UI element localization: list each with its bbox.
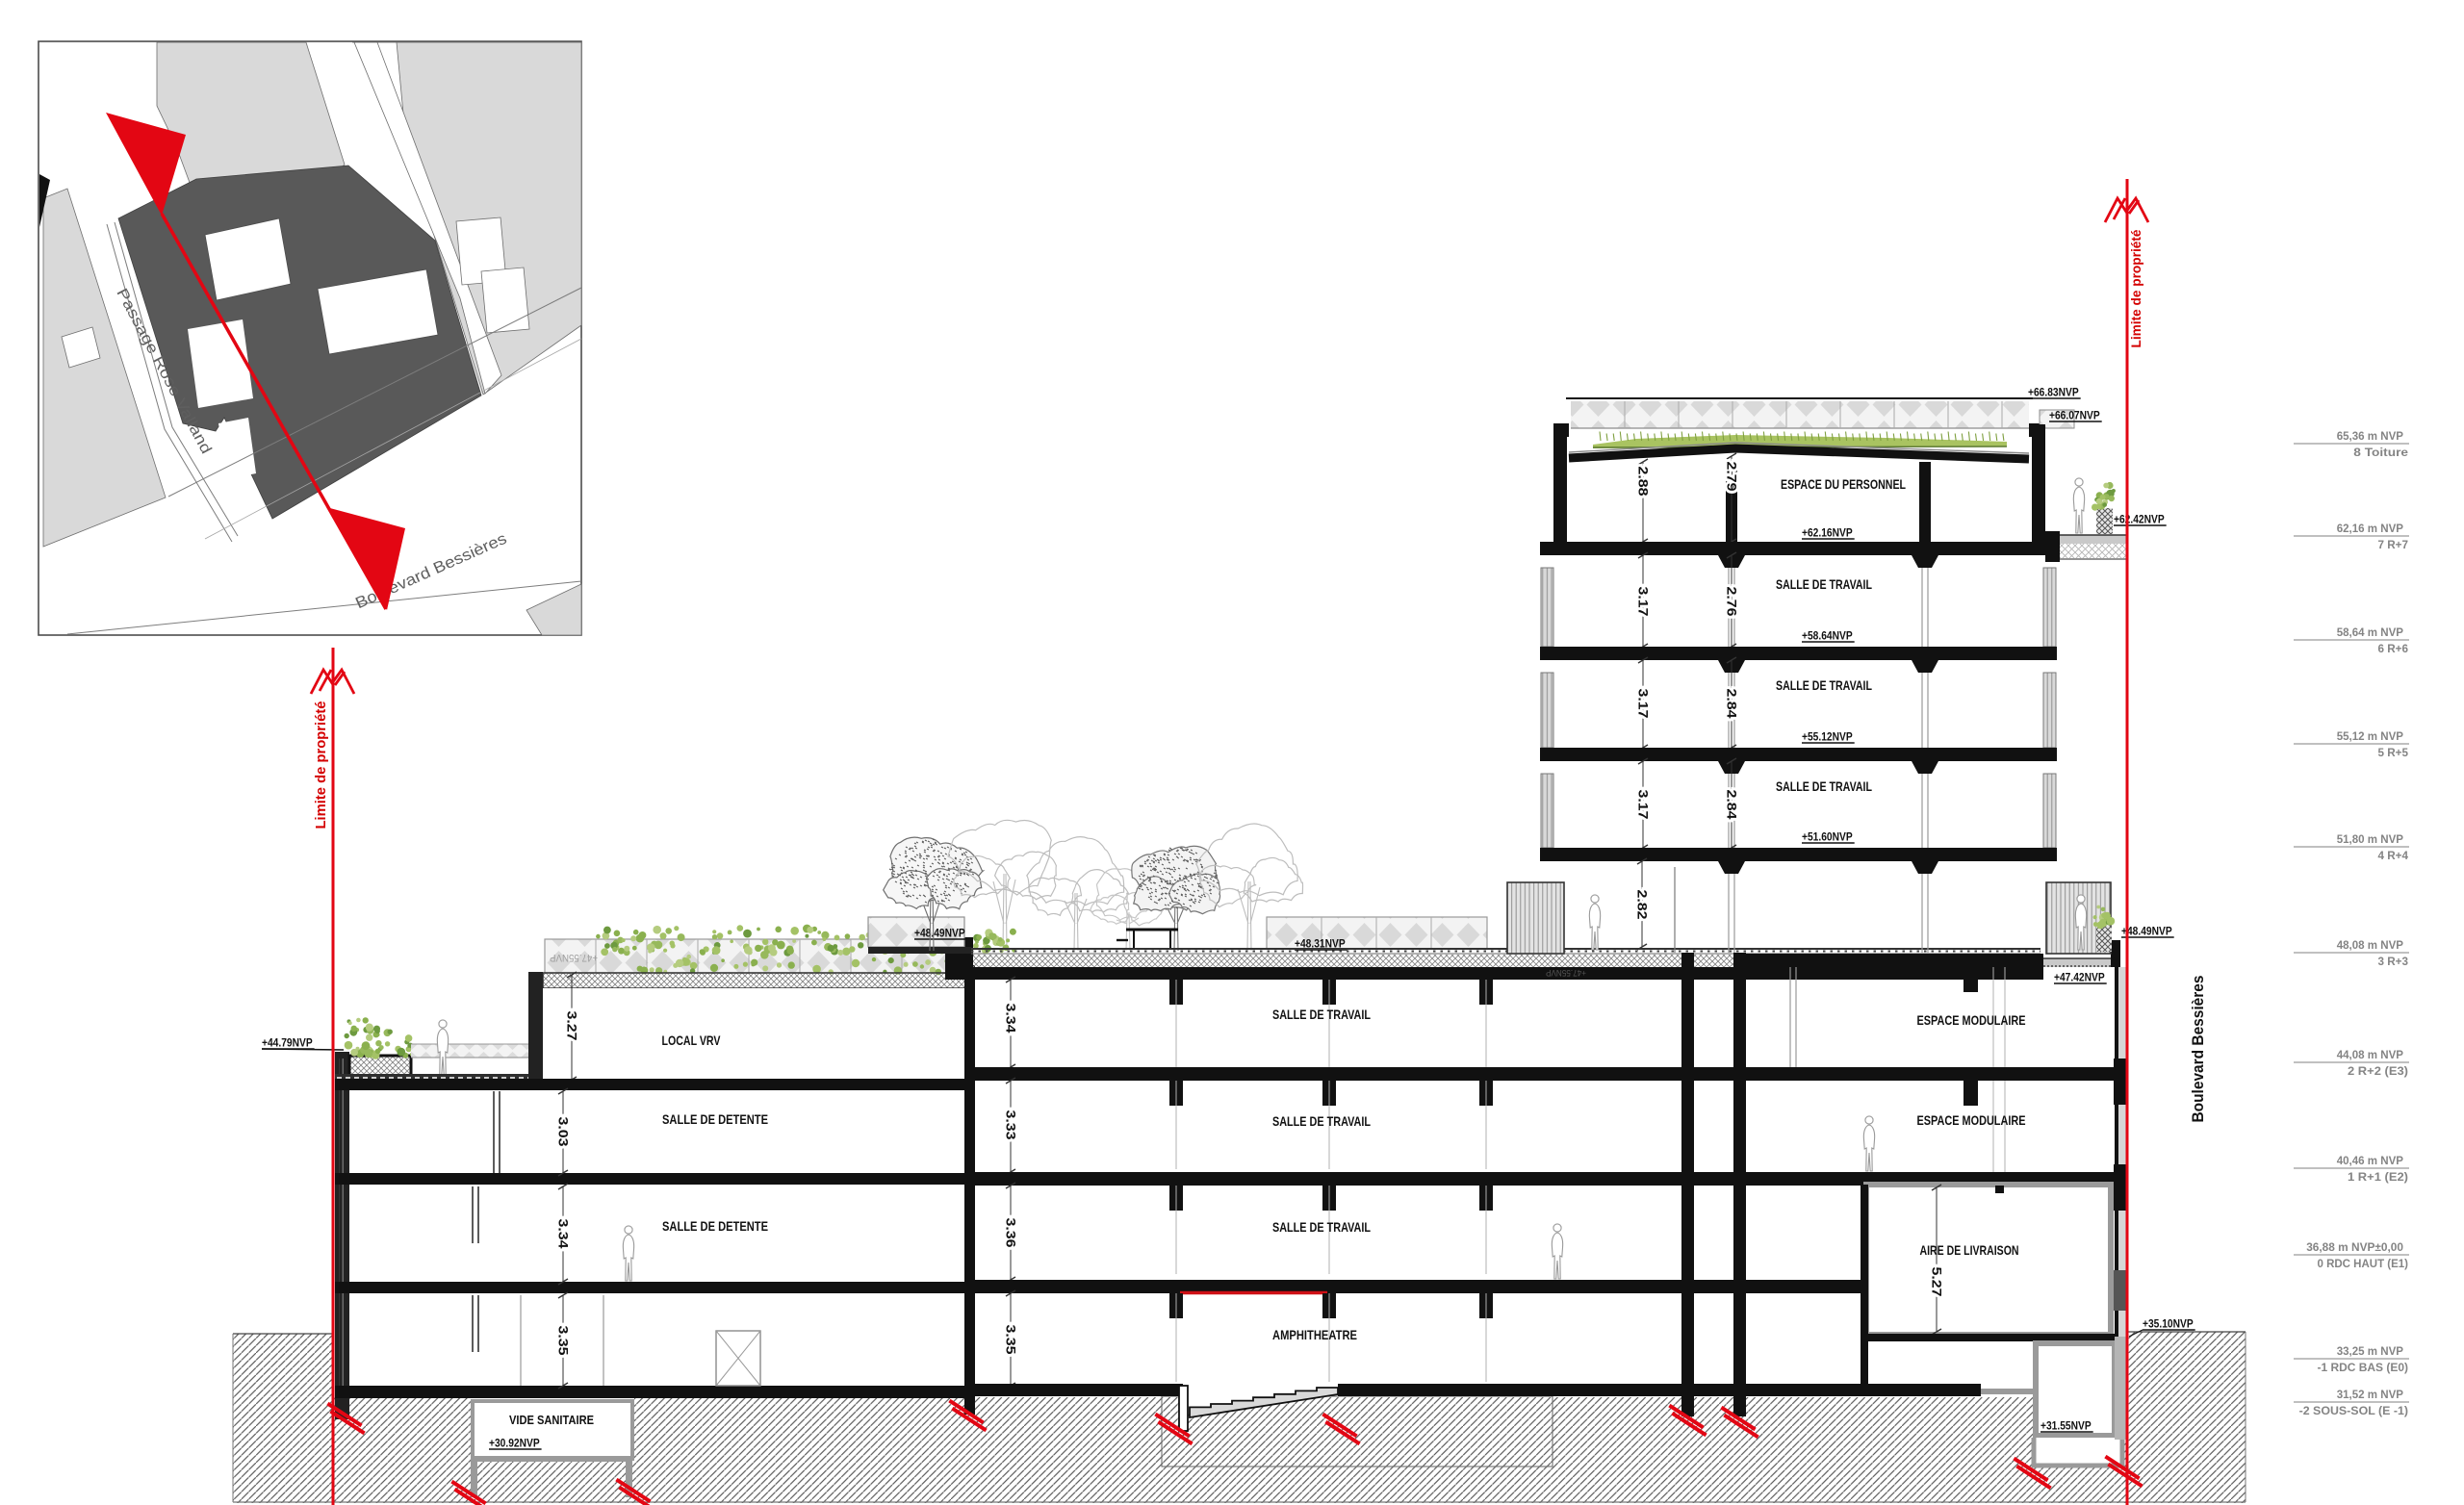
svg-text:58,64 m NVP: 58,64 m NVP: [2337, 625, 2403, 639]
svg-text:3.33: 3.33: [1004, 1110, 1018, 1141]
svg-text:SALLE DE TRAVAIL: SALLE DE TRAVAIL: [1272, 1007, 1371, 1022]
svg-text:2 R+2 (E3): 2 R+2 (E3): [2348, 1064, 2408, 1078]
svg-text:+35.10NVP: +35.10NVP: [2143, 1317, 2194, 1331]
svg-text:+47.42NVP: +47.42NVP: [2054, 971, 2105, 984]
svg-text:3.17: 3.17: [1636, 587, 1651, 617]
svg-text:+58.64NVP: +58.64NVP: [1802, 629, 1853, 643]
svg-text:8 Toiture: 8 Toiture: [2353, 446, 2408, 459]
svg-text:SALLE DE TRAVAIL: SALLE DE TRAVAIL: [1272, 1113, 1371, 1129]
svg-text:LOCAL VRV: LOCAL VRV: [662, 1033, 721, 1048]
svg-text:0 RDC HAUT (E1): 0 RDC HAUT (E1): [2318, 1257, 2409, 1270]
svg-text:-2 SOUS-SOL (E -1): -2 SOUS-SOL (E -1): [2299, 1404, 2408, 1417]
svg-text:ESPACE MODULAIRE: ESPACE MODULAIRE: [1917, 1012, 2026, 1028]
svg-text:+31.55NVP: +31.55NVP: [2040, 1419, 2092, 1433]
svg-text:VIDE SANITAIRE: VIDE SANITAIRE: [509, 1413, 594, 1427]
svg-text:2.79: 2.79: [1725, 462, 1739, 492]
svg-text:Limite de propriété: Limite de propriété: [2128, 229, 2143, 347]
svg-text:40,46 m NVP: 40,46 m NVP: [2337, 1154, 2403, 1167]
svg-text:+30.92NVP: +30.92NVP: [489, 1437, 540, 1450]
svg-text:+62.16NVP: +62.16NVP: [1802, 526, 1853, 540]
svg-text:+66.83NVP: +66.83NVP: [2028, 386, 2079, 399]
svg-text:Boulevard Bessières: Boulevard Bessières: [2189, 976, 2207, 1123]
svg-text:SALLE DE TRAVAIL: SALLE DE TRAVAIL: [1776, 778, 1872, 794]
svg-text:1 R+1 (E2): 1 R+1 (E2): [2348, 1170, 2408, 1184]
svg-text:3.35: 3.35: [556, 1326, 571, 1357]
svg-text:7 R+7: 7 R+7: [2378, 538, 2409, 551]
svg-text:AMPHITHEATRE: AMPHITHEATRE: [1272, 1327, 1357, 1342]
svg-text:65,36 m NVP: 65,36 m NVP: [2337, 429, 2403, 443]
svg-text:+66.07NVP: +66.07NVP: [2049, 409, 2100, 422]
svg-text:+51.60NVP: +51.60NVP: [1802, 830, 1853, 844]
svg-text:44,08 m NVP: 44,08 m NVP: [2337, 1048, 2403, 1061]
svg-text:AIRE DE LIVRAISON: AIRE DE LIVRAISON: [1920, 1242, 2019, 1258]
svg-text:+62.42NVP: +62.42NVP: [2114, 513, 2165, 526]
svg-text:3.03: 3.03: [556, 1117, 571, 1148]
svg-text:2.84: 2.84: [1725, 689, 1739, 720]
svg-text:3.36: 3.36: [1004, 1218, 1018, 1249]
svg-text:Limite de propriété: Limite de propriété: [313, 701, 329, 829]
svg-text:3.34: 3.34: [1004, 1004, 1018, 1034]
svg-text:SALLE DE TRAVAIL: SALLE DE TRAVAIL: [1776, 677, 1872, 693]
svg-text:+48.49NVP: +48.49NVP: [914, 927, 965, 940]
svg-text:+48.49NVP: +48.49NVP: [2121, 925, 2172, 938]
svg-text:51,80 m NVP: 51,80 m NVP: [2337, 832, 2403, 846]
svg-text:33,25 m NVP: 33,25 m NVP: [2337, 1344, 2403, 1358]
svg-text:3.17: 3.17: [1636, 790, 1651, 820]
svg-text:3.27: 3.27: [565, 1011, 579, 1041]
svg-text:2.76: 2.76: [1725, 587, 1739, 618]
svg-text:2.82: 2.82: [1635, 890, 1650, 920]
svg-text:+47.55NVP: +47.55NVP: [550, 952, 598, 963]
svg-text:2.88: 2.88: [1636, 467, 1651, 497]
svg-text:+44.79NVP: +44.79NVP: [262, 1036, 313, 1050]
svg-text:3.34: 3.34: [556, 1219, 571, 1250]
svg-text:6 R+6: 6 R+6: [2378, 642, 2409, 655]
svg-text:31,52 m NVP: 31,52 m NVP: [2337, 1388, 2403, 1401]
svg-text:+55.12NVP: +55.12NVP: [1802, 730, 1853, 744]
svg-text:48,08 m NVP: 48,08 m NVP: [2337, 938, 2403, 952]
svg-text:+47.55NVP: +47.55NVP: [1546, 968, 1586, 978]
svg-text:62,16 m NVP: 62,16 m NVP: [2337, 522, 2403, 535]
svg-text:SALLE DE DETENTE: SALLE DE DETENTE: [662, 1218, 768, 1234]
svg-text:ESPACE MODULAIRE: ESPACE MODULAIRE: [1917, 1112, 2026, 1128]
svg-text:3.35: 3.35: [1004, 1325, 1018, 1356]
svg-text:36,88 m NVP±0,00: 36,88 m NVP±0,00: [2306, 1240, 2403, 1254]
svg-text:3.17: 3.17: [1636, 689, 1651, 719]
svg-text:4 R+4: 4 R+4: [2378, 849, 2409, 862]
svg-text:55,12 m NVP: 55,12 m NVP: [2337, 729, 2403, 743]
svg-text:SALLE DE TRAVAIL: SALLE DE TRAVAIL: [1776, 576, 1872, 592]
svg-text:SALLE DE DETENTE: SALLE DE DETENTE: [662, 1111, 768, 1127]
svg-text:5 R+5: 5 R+5: [2378, 746, 2409, 759]
svg-text:-1 RDC BAS (E0): -1 RDC BAS (E0): [2318, 1361, 2409, 1374]
svg-text:3 R+3: 3 R+3: [2378, 955, 2409, 968]
svg-text:2.84: 2.84: [1725, 790, 1739, 821]
svg-text:SALLE DE TRAVAIL: SALLE DE TRAVAIL: [1272, 1219, 1371, 1235]
svg-text:ESPACE DU PERSONNEL: ESPACE DU PERSONNEL: [1781, 476, 1906, 492]
svg-text:5.27: 5.27: [1930, 1267, 1944, 1297]
